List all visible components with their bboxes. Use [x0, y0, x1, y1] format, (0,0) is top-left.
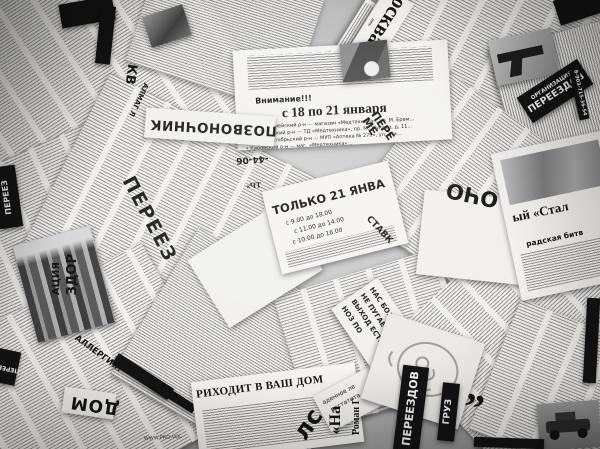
headline-zdor: ЗДОР: [66, 254, 79, 295]
article-photo: [500, 139, 600, 205]
headline-chto: «ЧТ: [246, 181, 262, 191]
portrait-photo: [339, 40, 391, 83]
label-gruz: ГРУЗ: [442, 399, 455, 426]
black-strip: [474, 437, 544, 449]
headline-kv: КВ: [123, 63, 139, 85]
label-pereez: ПЕРЕЕЗ: [0, 361, 20, 373]
headline-aciya: АЦИЯ: [52, 262, 62, 295]
label-pereezdov: ПЕРЕЕЗДОВ: [400, 371, 422, 447]
label-pereez: ПЕРЕЕЗ: [0, 179, 14, 215]
headline-na-quote: «На: [328, 406, 344, 434]
car-photo: [536, 400, 600, 449]
phone-fragment: -44-06: [236, 153, 269, 164]
newspaper-collage: осква в нюь КВ АЛМАГ Л Внимание!!! с 18 …: [0, 0, 600, 449]
headline-roman: Роман Г: [352, 398, 362, 435]
